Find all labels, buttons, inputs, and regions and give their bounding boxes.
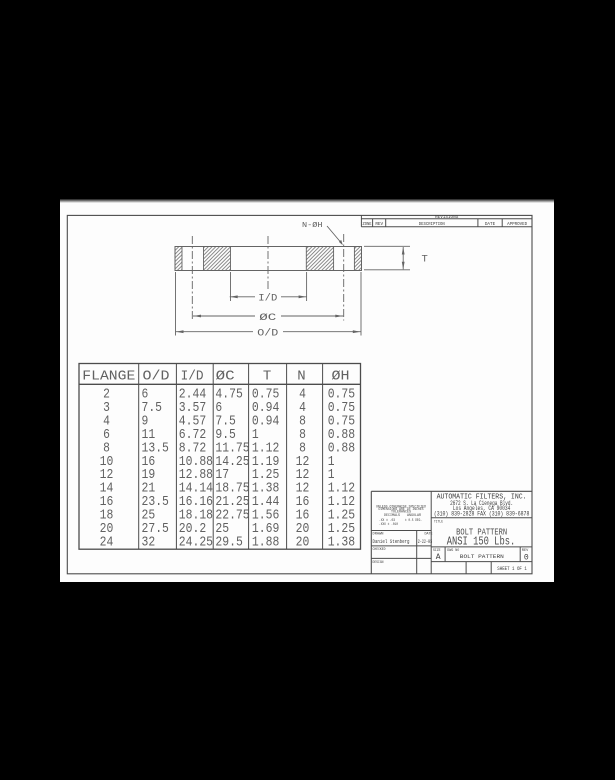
svg-text:ANGULAR: ANGULAR xyxy=(407,514,421,518)
svg-text:0: 0 xyxy=(524,553,529,562)
svg-text:Daniel Stenberg: Daniel Stenberg xyxy=(373,539,410,545)
svg-text:O/D: O/D xyxy=(143,368,170,384)
svg-text:24: 24 xyxy=(100,534,114,550)
svg-text:DESCRIPTION: DESCRIPTION xyxy=(419,222,445,227)
svg-text:N: N xyxy=(297,368,305,384)
svg-text:2-22-95: 2-22-95 xyxy=(418,539,433,545)
svg-text:ØC: ØC xyxy=(216,368,235,384)
svg-text:DATE: DATE xyxy=(425,533,434,537)
svg-text:DESIGN: DESIGN xyxy=(373,561,384,565)
svg-text:APPROVED: APPROVED xyxy=(507,222,527,227)
svg-text:.XXX ± .010: .XXX ± .010 xyxy=(379,523,398,527)
svg-text:1.88: 1.88 xyxy=(252,534,279,550)
svg-text:I/D: I/D xyxy=(258,293,277,305)
svg-text:20: 20 xyxy=(296,534,310,550)
svg-text:1.38: 1.38 xyxy=(328,534,355,550)
svg-text:O/D: O/D xyxy=(257,328,278,340)
svg-text:ØC: ØC xyxy=(259,312,276,324)
svg-text:SHEET 1 OF 1: SHEET 1 OF 1 xyxy=(497,565,527,572)
svg-text:REV: REV xyxy=(375,222,383,227)
svg-text:REVISIONS: REVISIONS xyxy=(435,215,459,220)
svg-text:ZONE: ZONE xyxy=(363,222,372,227)
svg-text:FLANGE: FLANGE xyxy=(82,368,135,384)
svg-text:T: T xyxy=(263,368,271,384)
svg-text:32: 32 xyxy=(142,534,156,550)
svg-text:DECIMALS: DECIMALS xyxy=(384,514,400,518)
svg-text:CHECKED: CHECKED xyxy=(373,548,387,552)
svg-text:DRAWN: DRAWN xyxy=(373,533,384,537)
svg-text:TITLE: TITLE xyxy=(434,521,444,525)
svg-text:ØH: ØH xyxy=(332,368,350,384)
svg-text:29.5: 29.5 xyxy=(215,534,242,550)
svg-text:A: A xyxy=(436,553,441,562)
svg-text:N-ØH: N-ØH xyxy=(302,221,323,230)
svg-text:(310) 839-2828 FAX (310) 839-: (310) 839-2828 FAX (310) 839-6878 xyxy=(434,510,530,517)
svg-text:I/D: I/D xyxy=(181,368,204,384)
svg-text:T: T xyxy=(422,254,428,266)
svg-text:± 0.5 DEG.: ± 0.5 DEG. xyxy=(405,519,422,523)
svg-text:DATE: DATE xyxy=(485,222,496,227)
svg-text:24.25: 24.25 xyxy=(179,534,213,550)
svg-text:DWG NO: DWG NO xyxy=(447,549,460,553)
svg-text:BOLT PATTERN: BOLT PATTERN xyxy=(460,553,504,560)
